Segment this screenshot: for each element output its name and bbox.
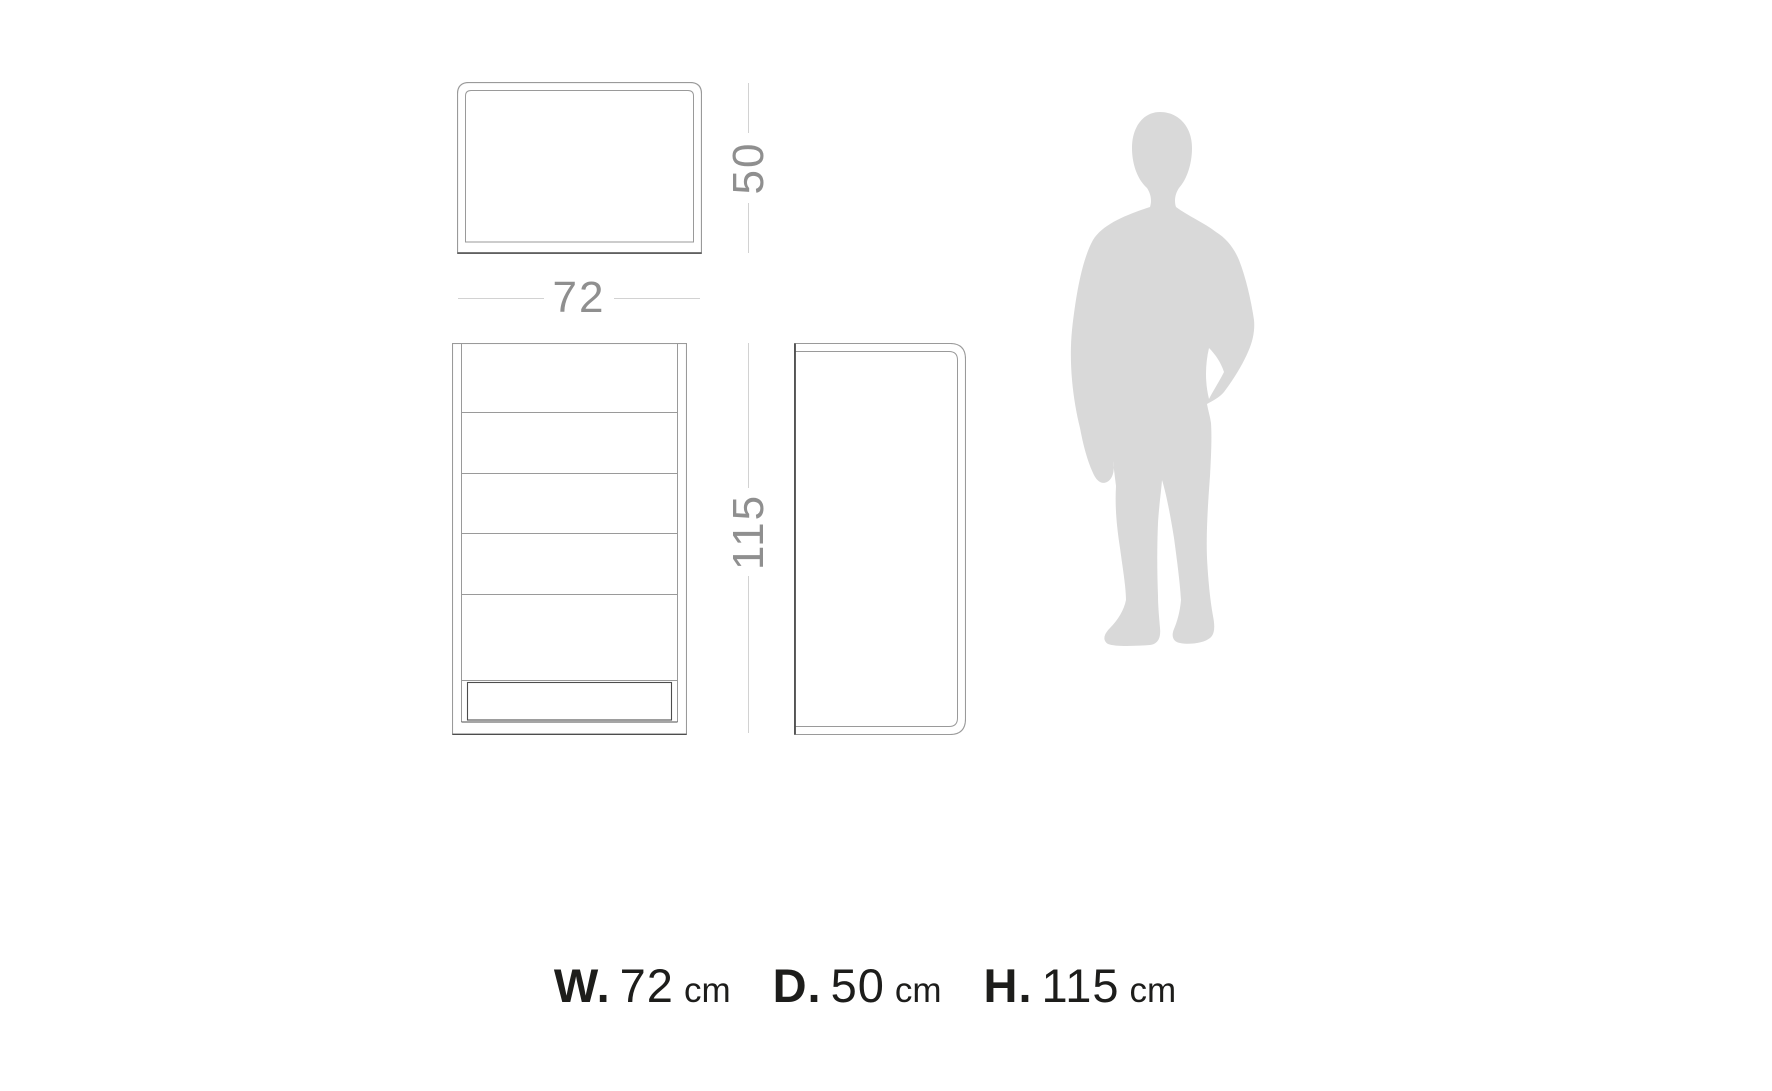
caption-height-group: H. 115 cm bbox=[984, 958, 1177, 1013]
top-view-inner-outline bbox=[466, 91, 694, 243]
front-view-outer-outline bbox=[453, 344, 687, 735]
caption-width-unit: cm bbox=[684, 971, 731, 1011]
width-dim-line-left bbox=[458, 298, 544, 299]
side-view-drawing bbox=[794, 343, 966, 735]
caption-height-value: 115 bbox=[1042, 958, 1120, 1013]
side-view-outer-outline bbox=[795, 344, 966, 735]
height-dim-line-top bbox=[748, 343, 749, 488]
width-dim-line-right bbox=[614, 298, 700, 299]
width-dim-label: 72 bbox=[548, 276, 610, 320]
height-dim-line-bottom bbox=[748, 576, 749, 733]
depth-dim-line-bottom bbox=[748, 203, 749, 253]
dimensions-caption: W. 72 cm D. 50 cm H. 115 cm bbox=[520, 958, 1210, 1013]
caption-height-label: H. bbox=[984, 958, 1033, 1013]
height-dim-label: 115 bbox=[727, 491, 771, 573]
caption-depth-group: D. 50 cm bbox=[773, 958, 942, 1013]
top-view-drawing bbox=[457, 82, 702, 254]
side-view-inner-outline bbox=[795, 352, 958, 727]
depth-dim-label: 50 bbox=[727, 137, 771, 199]
caption-depth-label: D. bbox=[773, 958, 822, 1013]
top-view-outer-outline bbox=[458, 83, 702, 254]
human-silhouette-shape bbox=[1071, 112, 1254, 646]
plinth-recess bbox=[468, 683, 672, 721]
caption-width-label: W. bbox=[554, 958, 611, 1013]
scale-figure-silhouette bbox=[1058, 108, 1273, 653]
front-view-drawing bbox=[452, 343, 687, 735]
caption-depth-value: 50 bbox=[831, 958, 885, 1013]
caption-width-value: 72 bbox=[620, 958, 674, 1013]
caption-depth-unit: cm bbox=[895, 971, 942, 1011]
caption-width-group: W. 72 cm bbox=[554, 958, 731, 1013]
depth-dim-line-top bbox=[748, 83, 749, 133]
caption-height-unit: cm bbox=[1129, 971, 1176, 1011]
dimension-diagram: 50 72 115 W. bbox=[0, 0, 1772, 1091]
